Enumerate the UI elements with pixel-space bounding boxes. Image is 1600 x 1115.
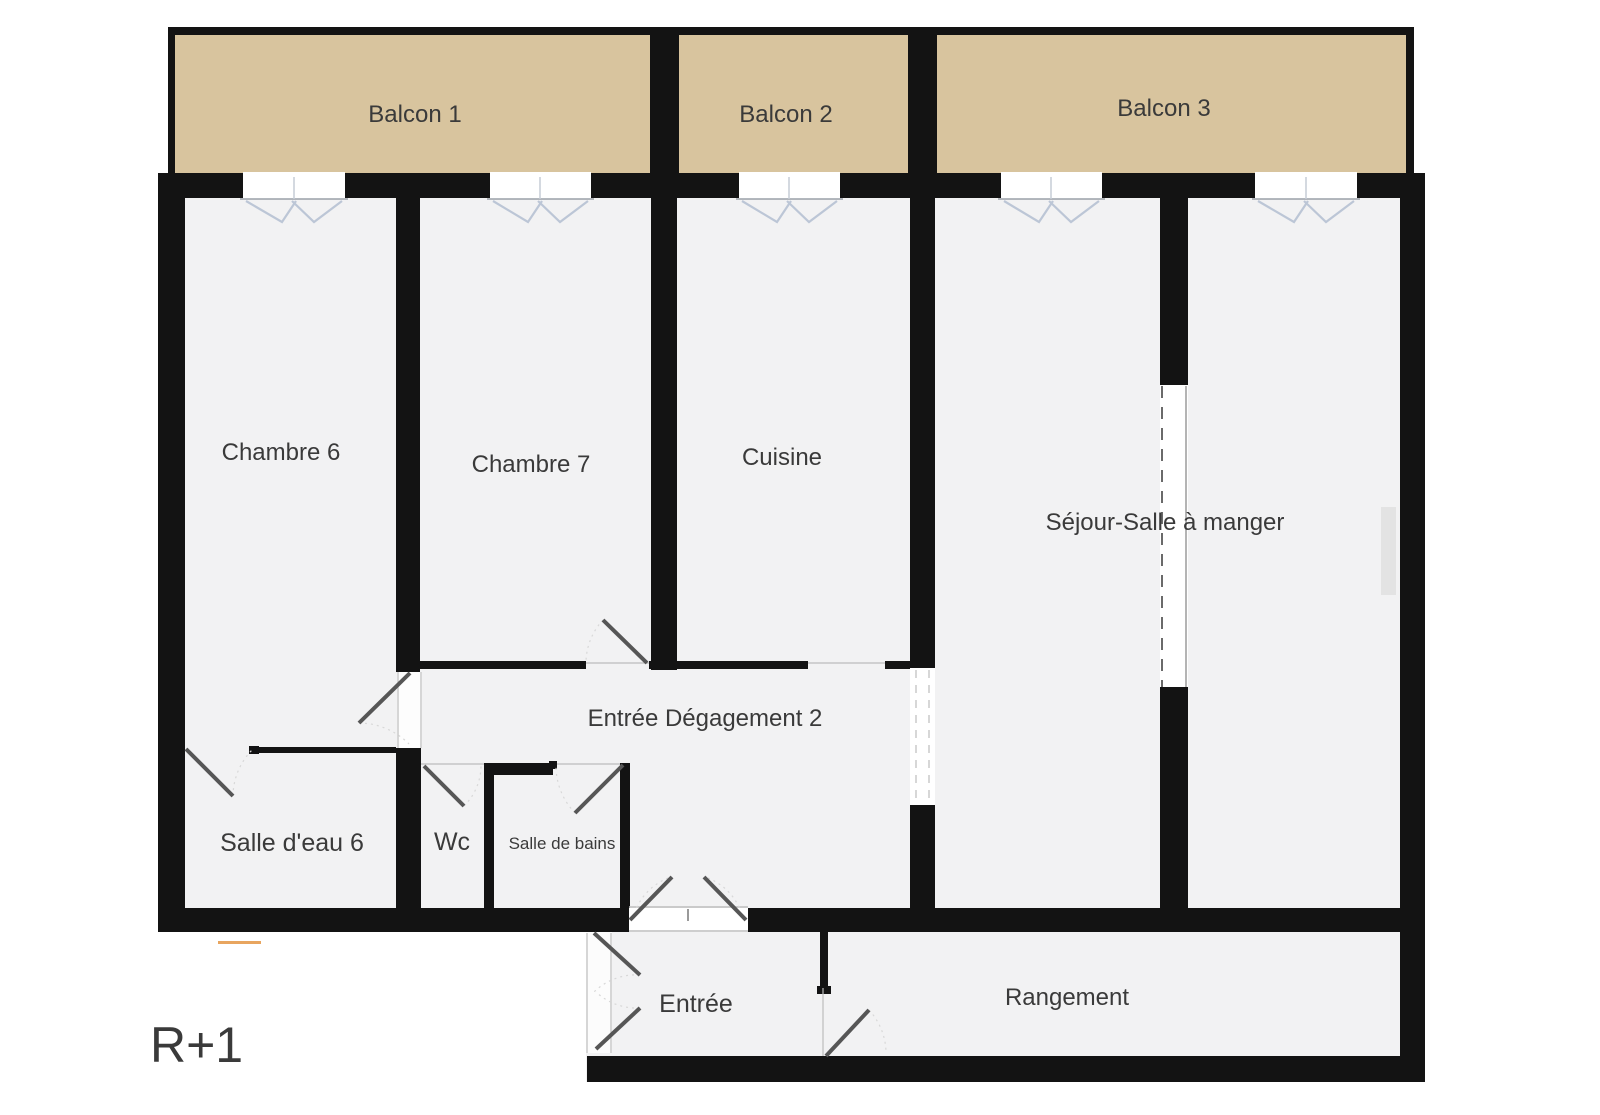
- svg-text:Salle de bains: Salle de bains: [509, 834, 616, 853]
- svg-text:Chambre 7: Chambre 7: [472, 451, 591, 478]
- svg-text:Rangement: Rangement: [1005, 984, 1129, 1011]
- svg-text:Balcon 3: Balcon 3: [1117, 95, 1210, 122]
- svg-text:Balcon 2: Balcon 2: [739, 101, 832, 128]
- svg-text:Wc: Wc: [434, 828, 470, 856]
- svg-text:R+1: R+1: [150, 1017, 243, 1073]
- svg-text:Entrée Dégagement 2: Entrée Dégagement 2: [588, 705, 823, 732]
- svg-text:Entrée: Entrée: [659, 990, 733, 1018]
- svg-text:Cuisine: Cuisine: [742, 444, 822, 471]
- svg-text:Balcon 1: Balcon 1: [368, 101, 461, 128]
- svg-text:Séjour-Salle à manger: Séjour-Salle à manger: [1046, 509, 1285, 536]
- svg-text:Chambre 6: Chambre 6: [222, 439, 341, 466]
- svg-text:Salle d'eau 6: Salle d'eau 6: [220, 829, 364, 857]
